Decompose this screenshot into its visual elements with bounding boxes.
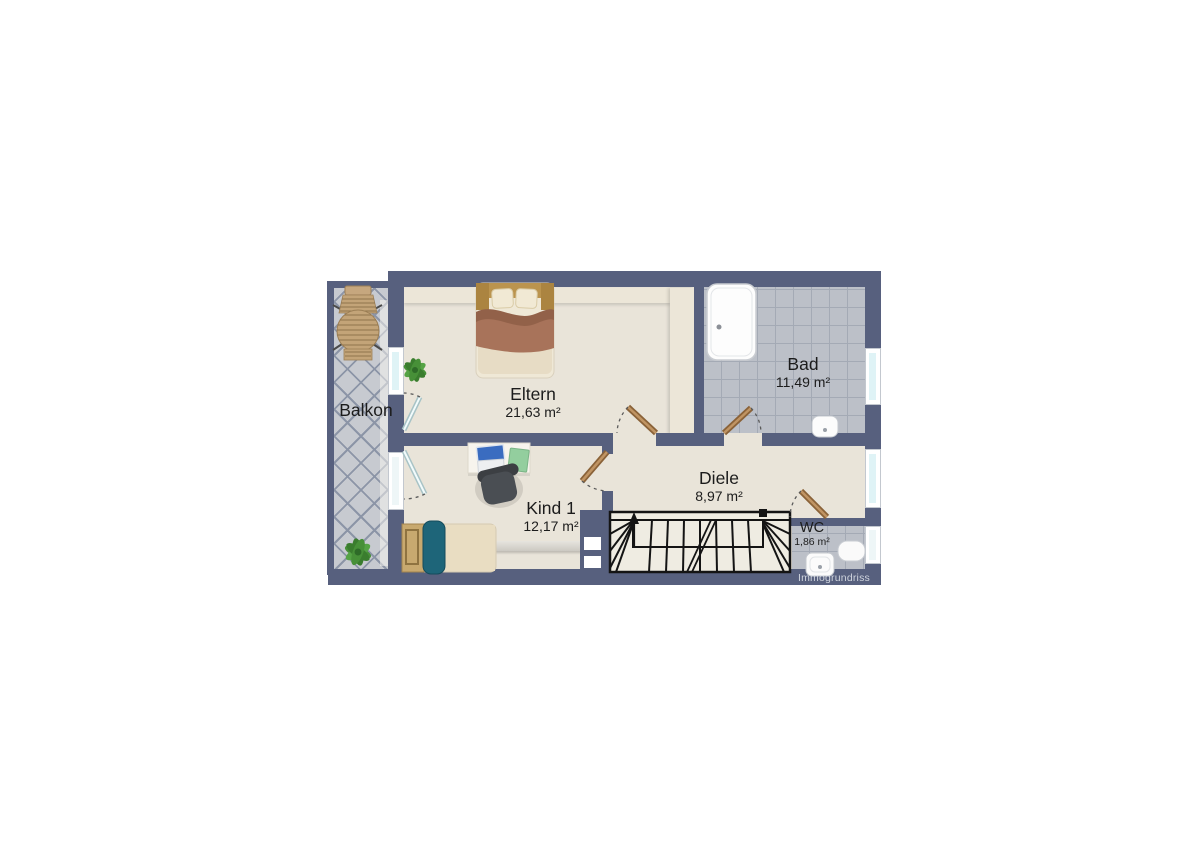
wall-eltern-bad (694, 287, 704, 433)
room-label-kind1: Kind 1 12,17 m² (523, 499, 578, 536)
wall-balcony-left (327, 281, 334, 575)
wall-bad-diele (762, 433, 865, 446)
wardrobe-right-eltern (670, 288, 694, 434)
watermark: Immogrundriss (798, 572, 870, 584)
room-area-diele: 8,97 m² (695, 487, 742, 505)
wall-eltern-diele (656, 433, 724, 446)
room-area-bad: 11,49 m² (776, 373, 830, 391)
wall-eltern-kind1 (404, 433, 612, 446)
room-area-eltern: 21,63 m² (505, 403, 560, 421)
room-label-diele: Diele 8,97 m² (695, 469, 742, 506)
room-name-bad: Bad (776, 355, 830, 373)
room-area-wc: 1,86 m² (794, 536, 830, 548)
room-name-kind1: Kind 1 (523, 499, 578, 517)
room-area-kind1: 12,17 m² (523, 517, 578, 535)
window-wc-glass (869, 530, 876, 560)
wall-kind1-diele-lower (602, 491, 613, 569)
window-bad-glass (869, 353, 876, 400)
balcony-door-glass-kind1 (392, 457, 399, 505)
window-diele-glass (869, 454, 876, 503)
room-name-wc: WC (794, 521, 830, 536)
wall-kind1-diele-upper (602, 433, 613, 454)
room-label-bad: Bad 11,49 m² (776, 355, 830, 392)
floor-plan: Balkon Eltern 21,63 m² Bad 11,49 m² Kind… (0, 0, 1200, 848)
sideboard-kind1 (493, 541, 588, 551)
wall-top (388, 271, 881, 287)
room-label-wc: WC 1,86 m² (794, 521, 830, 548)
room-name-diele: Diele (695, 469, 742, 487)
wardrobe-top-eltern (404, 288, 670, 303)
wall-shaft-block (580, 510, 602, 569)
room-name-balkon: Balkon (339, 401, 393, 419)
room-label-balkon: Balkon (339, 401, 393, 419)
wall-left-building (388, 271, 404, 585)
room-name-eltern: Eltern (505, 385, 560, 403)
wall-balcony-top (327, 281, 388, 288)
room-label-eltern: Eltern 21,63 m² (505, 385, 560, 422)
balcony-threshold-strip (380, 300, 388, 566)
balcony-door-glass-eltern (392, 352, 399, 390)
